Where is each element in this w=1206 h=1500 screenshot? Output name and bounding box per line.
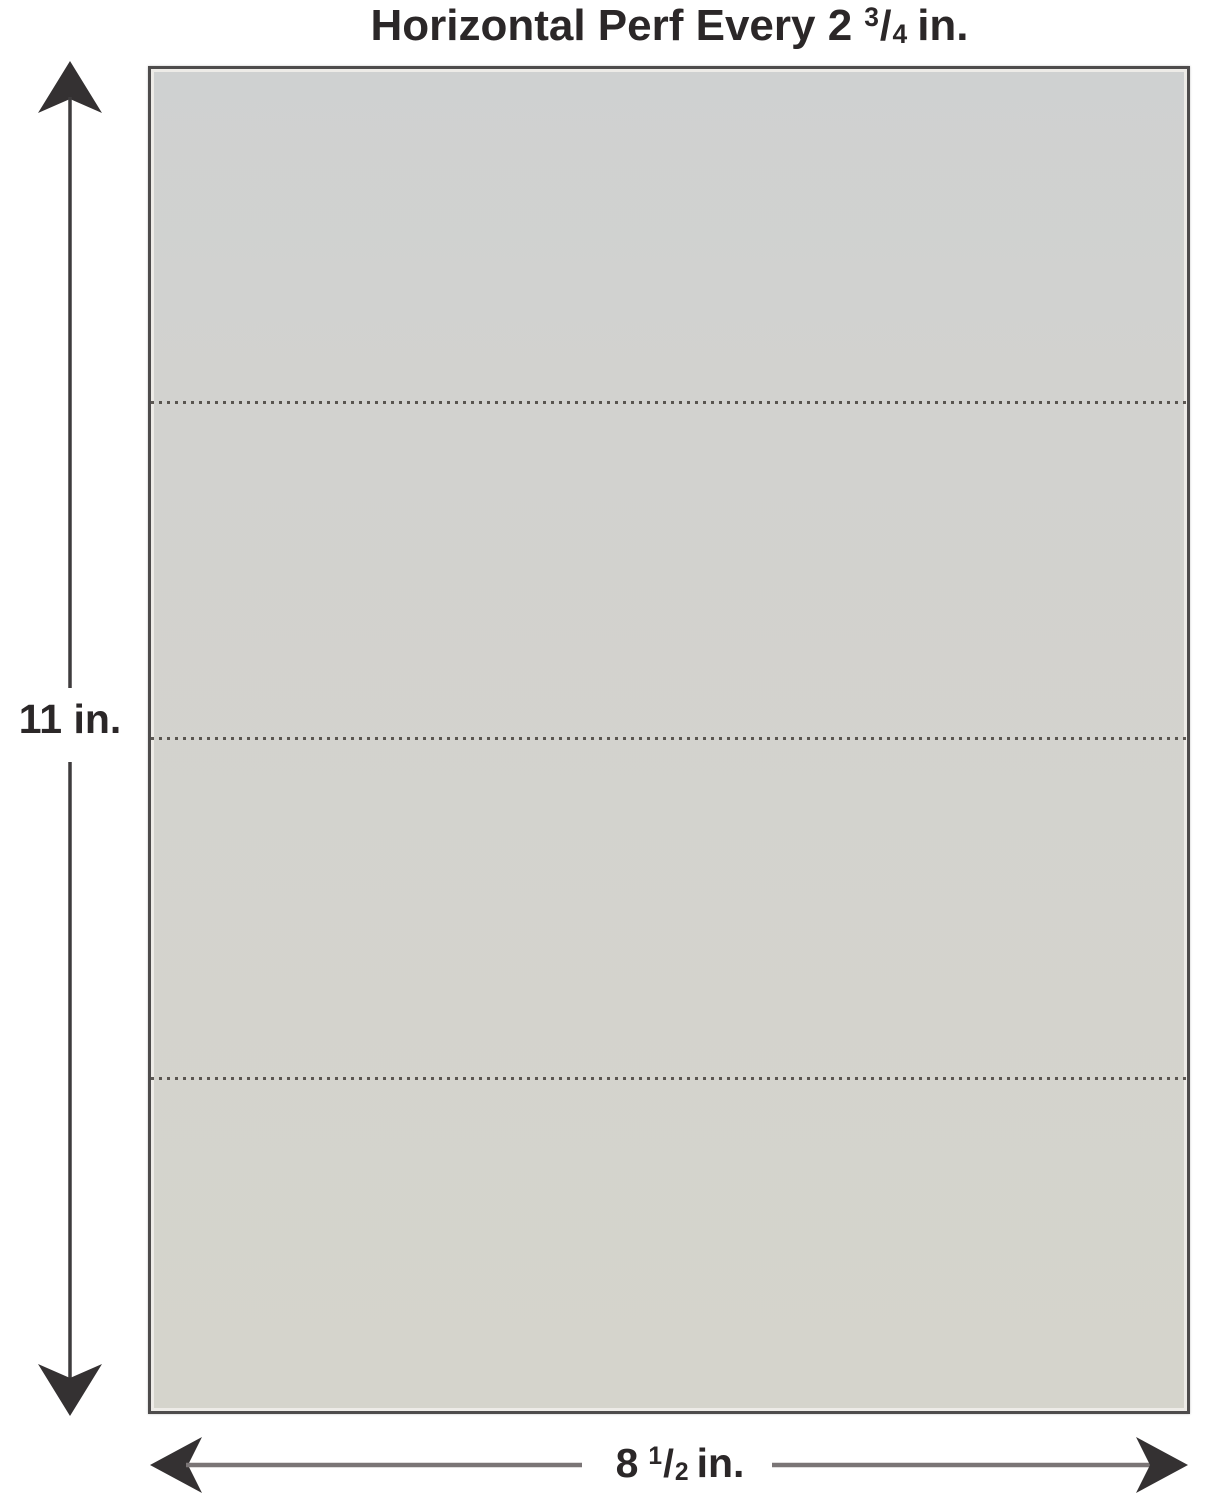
width-label: 81/2in. (580, 1440, 780, 1487)
width-label-suffix: in. (697, 1440, 745, 1486)
perforation-line (151, 737, 1187, 740)
height-label-text: 11 in. (19, 696, 122, 742)
width-label-prefix: 8 (616, 1440, 639, 1486)
title-fraction-slash: / (880, 2, 892, 50)
perforation-line (151, 1077, 1187, 1080)
height-label: 11 in. (0, 696, 140, 743)
diagram-title: Horizontal Perf Every 23/4in. (148, 1, 1191, 51)
title-prefix: Horizontal Perf Every 2 (370, 1, 852, 50)
paper-sheet (148, 66, 1190, 1414)
width-fraction-denominator: 2 (675, 1459, 689, 1487)
width-fraction-slash: / (663, 1443, 674, 1487)
title-suffix: in. (917, 1, 968, 50)
title-fraction: 3/4 (864, 1, 907, 51)
width-fraction: 1/2 (648, 1440, 688, 1487)
title-fraction-denominator: 4 (893, 19, 908, 50)
title-fraction-numerator: 3 (864, 2, 879, 33)
perforated-paper-diagram: Horizontal Perf Every 23/4in. 11 in. 81/… (0, 0, 1206, 1500)
perforation-line (151, 401, 1187, 404)
width-fraction-numerator: 1 (648, 1443, 662, 1471)
